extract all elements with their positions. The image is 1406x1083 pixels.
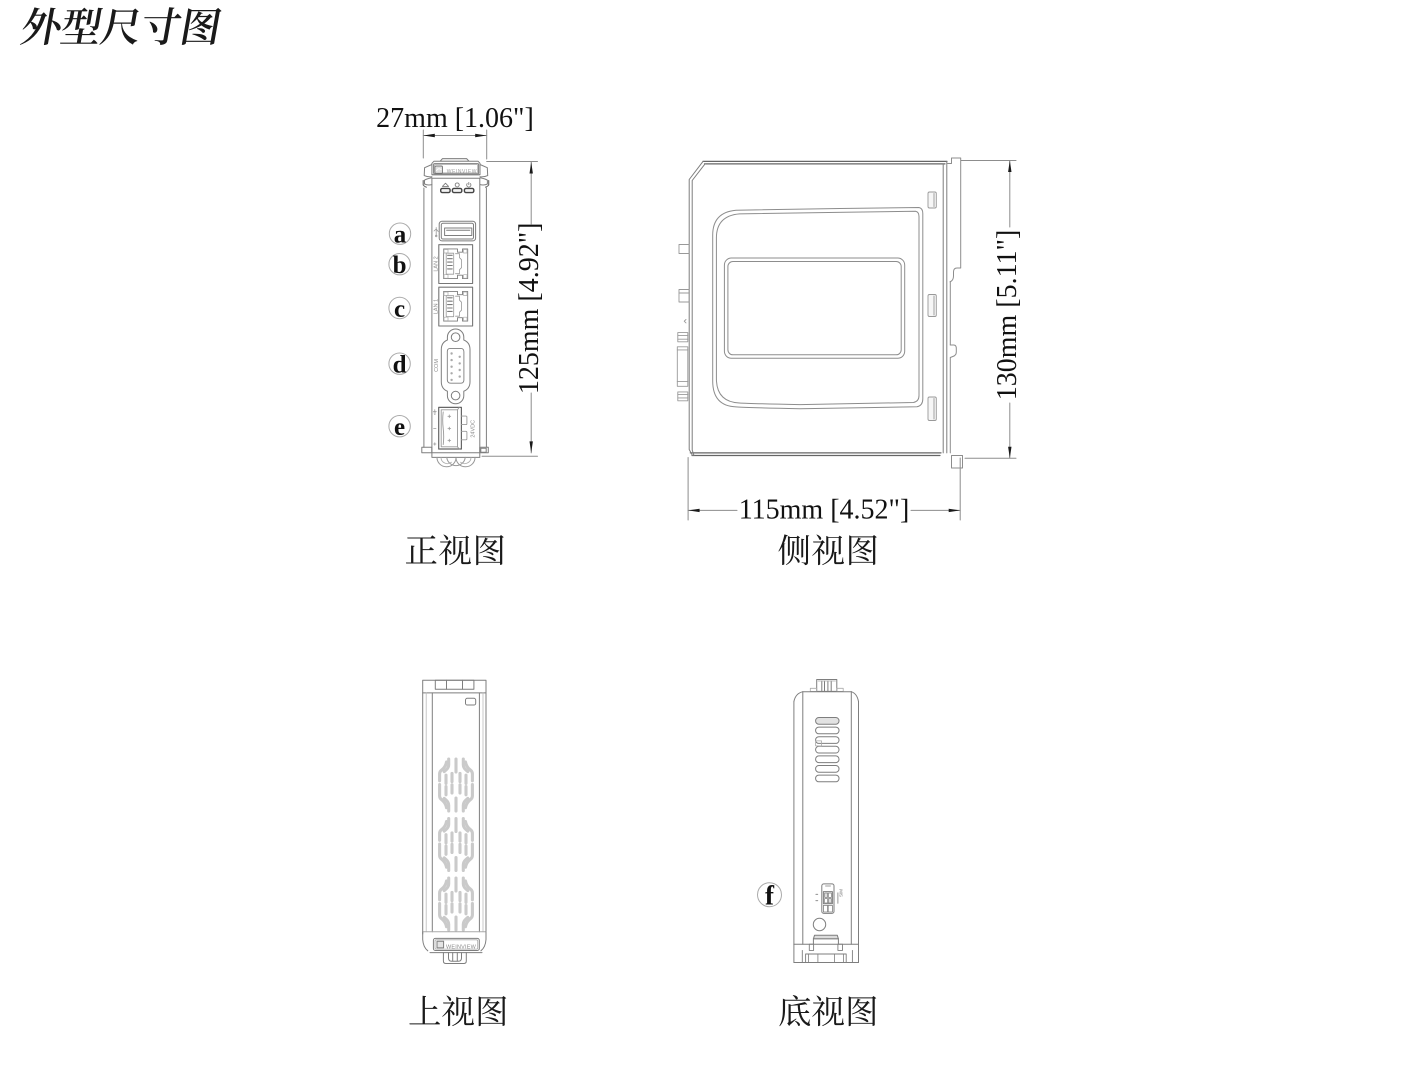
svg-text:c: c: [394, 296, 405, 323]
svg-text:f: f: [765, 880, 775, 910]
svg-text:LAN 1: LAN 1: [434, 299, 440, 314]
svg-text:LAN 2: LAN 2: [434, 256, 440, 271]
svg-text:COM: COM: [434, 359, 440, 372]
svg-text:WEINVIEW: WEINVIEW: [446, 944, 477, 950]
svg-text:d: d: [393, 352, 407, 379]
svg-text:a: a: [394, 222, 407, 249]
svg-text:SIM: SIM: [839, 889, 844, 897]
svg-text:24VDC: 24VDC: [471, 420, 477, 438]
svg-text:e: e: [394, 414, 405, 441]
svg-text:130mm [5.11"]: 130mm [5.11"]: [992, 230, 1023, 401]
svg-text:125mm [4.92"]: 125mm [4.92"]: [514, 222, 545, 394]
svg-text:WEINVIEW: WEINVIEW: [447, 169, 477, 175]
svg-text:115mm [4.52"]: 115mm [4.52"]: [739, 494, 910, 525]
svg-text:27mm [1.06"]: 27mm [1.06"]: [376, 103, 534, 134]
svg-text:b: b: [393, 252, 407, 279]
